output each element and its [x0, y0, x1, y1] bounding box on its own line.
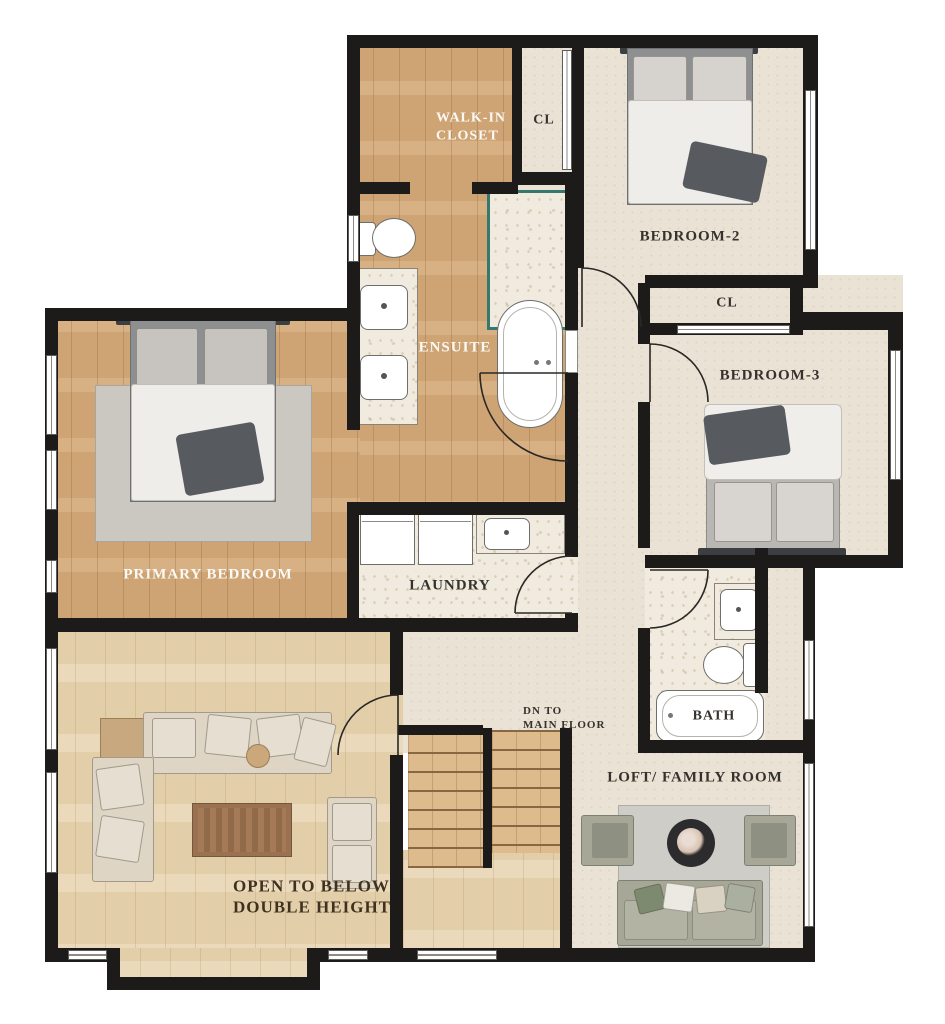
door-laundry: [515, 556, 572, 613]
door-bedroom2: [582, 268, 641, 327]
door-arcs: [0, 0, 945, 1024]
door-open-below: [338, 695, 398, 755]
door-bath: [650, 570, 708, 628]
floor-plan: WALK-INCLOSET CL BEDROOM-2 CL BEDROOM-3 …: [0, 0, 945, 1024]
label-cl-top: CL: [533, 111, 554, 129]
label-laundry: LAUNDRY: [409, 577, 490, 596]
label-bedroom2: BEDROOM-2: [640, 228, 741, 247]
label-ensuite: ENSUITE: [419, 339, 492, 358]
label-bath: BATH: [693, 707, 736, 725]
door-bedroom3: [650, 344, 708, 402]
label-primary-bedroom: PRIMARY BEDROOM: [123, 566, 292, 585]
label-bedroom3: BEDROOM-3: [720, 367, 821, 386]
label-loft: LOFT/ FAMILY ROOM: [607, 769, 783, 788]
label-cl-mid: CL: [716, 294, 737, 312]
door-ensuite: [480, 373, 568, 461]
